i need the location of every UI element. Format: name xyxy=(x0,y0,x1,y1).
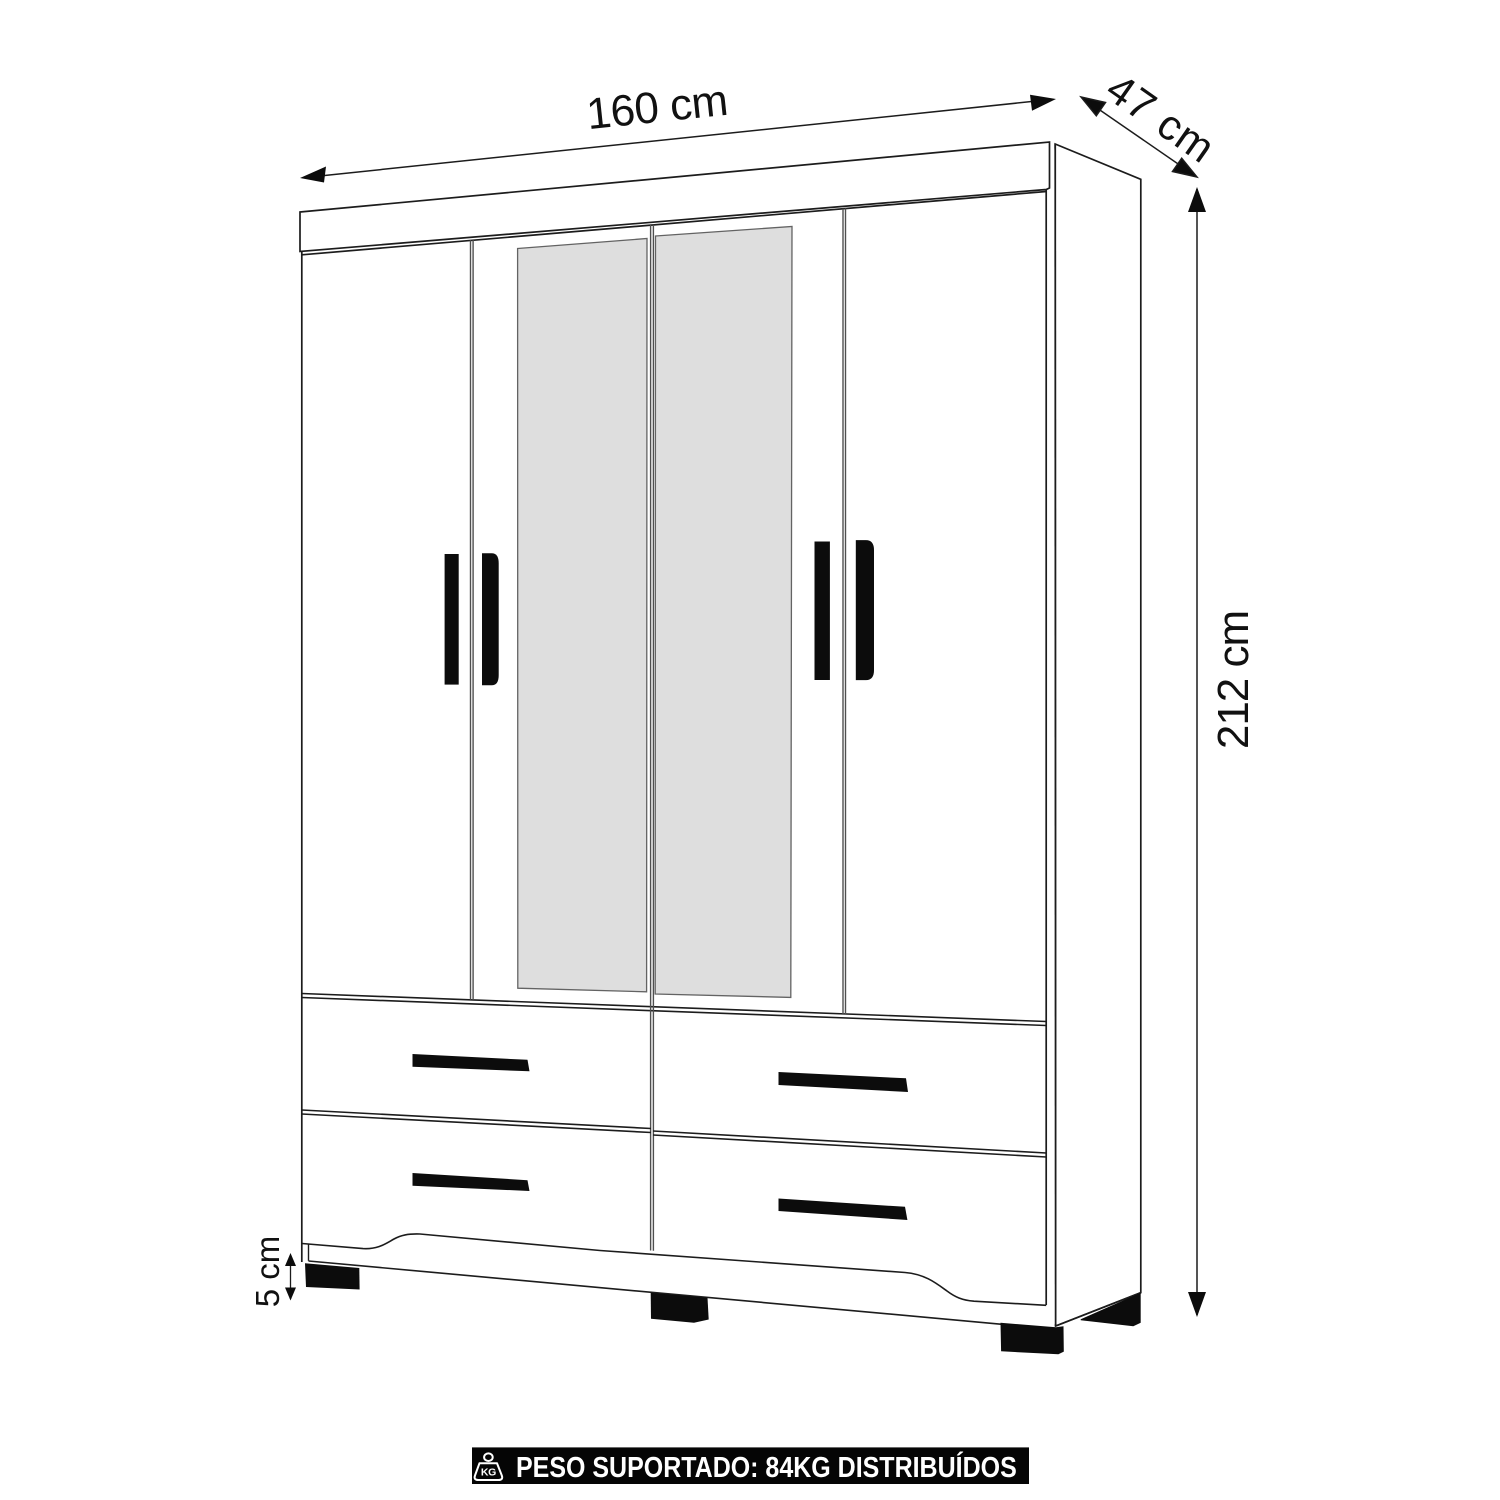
svg-text:KG: KG xyxy=(481,1467,496,1479)
svg-text:5 cm: 5 cm xyxy=(249,1236,286,1308)
svg-text:212 cm: 212 cm xyxy=(1209,611,1258,749)
svg-text:PESO SUPORTADO: 84KG DISTRIBUÍ: PESO SUPORTADO: 84KG DISTRIBUÍDOS xyxy=(516,1451,1017,1484)
